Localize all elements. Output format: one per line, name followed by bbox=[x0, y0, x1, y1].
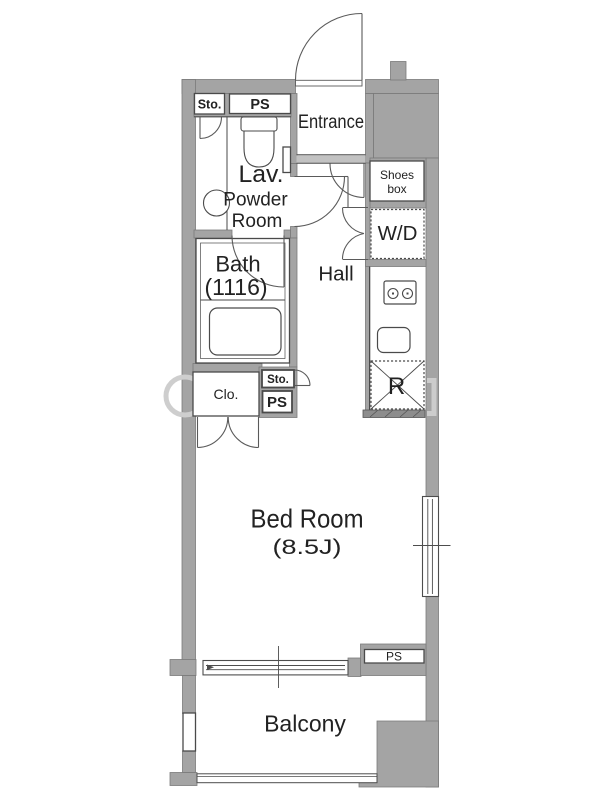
svg-text:Clo.: Clo. bbox=[214, 386, 239, 402]
svg-text:(8.5J): (8.5J) bbox=[273, 536, 342, 559]
svg-text:R: R bbox=[388, 373, 405, 400]
svg-text:Entrance: Entrance bbox=[298, 112, 364, 133]
svg-text:(1116): (1116) bbox=[204, 274, 267, 300]
svg-text:Balcony: Balcony bbox=[264, 711, 346, 737]
svg-text:Bed Room: Bed Room bbox=[251, 504, 364, 534]
svg-text:Lav.: Lav. bbox=[239, 161, 284, 188]
svg-text:Sto.: Sto. bbox=[267, 374, 289, 386]
svg-text:Sto.: Sto. bbox=[198, 98, 222, 112]
svg-text:Shoes: Shoes bbox=[380, 168, 414, 182]
svg-text:Room: Room bbox=[232, 211, 283, 232]
svg-text:Bath: Bath bbox=[215, 252, 260, 277]
svg-text:Powder: Powder bbox=[223, 190, 288, 211]
svg-text:PS: PS bbox=[250, 97, 270, 113]
svg-text:box: box bbox=[387, 182, 406, 196]
svg-text:PS: PS bbox=[267, 394, 287, 411]
svg-text:W/D: W/D bbox=[378, 222, 418, 245]
svg-text:PS: PS bbox=[386, 650, 402, 664]
svg-text:Hall: Hall bbox=[318, 263, 353, 286]
